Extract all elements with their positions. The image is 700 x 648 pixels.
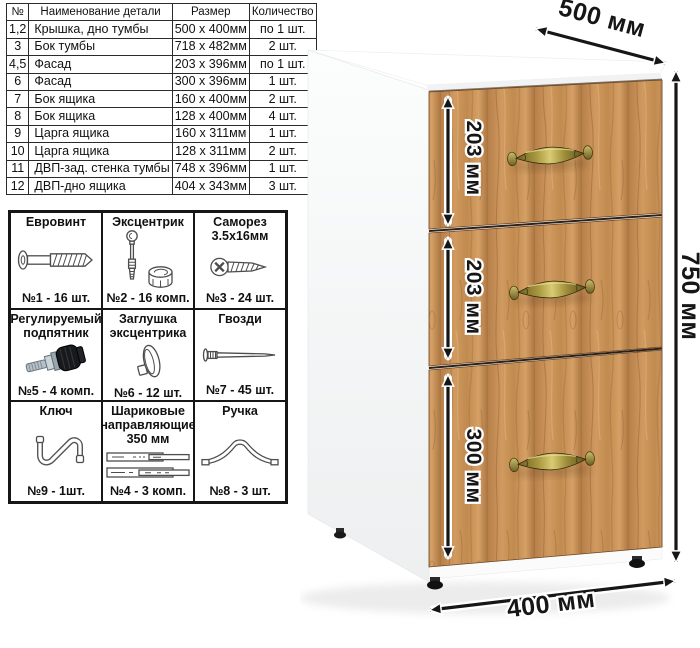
cell-name: Фасад (29, 56, 172, 73)
table-row: 3Бок тумбы718 x 482мм2 шт. (7, 38, 317, 55)
hardware-item-eurovint: Евровинт №1 - 16 шт. (10, 212, 102, 309)
hardware-item-count: №6 - 12 шт. (114, 386, 182, 400)
hardware-item-samorez: Саморез 3.5х16мм №3 - 24 шт. (194, 212, 286, 309)
cell-num: 3 (7, 38, 29, 55)
euro-screw-icon (16, 229, 96, 291)
cell-name: Бок тумбы (29, 38, 172, 55)
adjustable-foot-icon (23, 340, 89, 384)
hardware-item-title: Ручка (222, 404, 258, 418)
bow-handle-icon (201, 418, 279, 484)
cell-num: 8 (7, 108, 29, 125)
table-row: 10Царга ящика128 x 311мм2 шт. (7, 143, 317, 160)
cell-num: 9 (7, 125, 29, 142)
cabinet-illustration: 203 мм 203 мм 300 мм 750 мм 500 мм 400 м… (300, 0, 700, 648)
cell-size: 718 x 482мм (172, 38, 249, 55)
ball-bearing-slides-icon (105, 446, 191, 484)
cam-lock-icon (119, 229, 177, 291)
hardware-grid: Евровинт №1 - 16 шт. Эксцентрик (8, 210, 288, 504)
hardware-item-excentric: Эксцентрик №2 - 16 комп. (102, 212, 194, 309)
cell-num: 7 (7, 90, 29, 107)
cell-num: 1,2 (7, 21, 29, 38)
dimension-label-drawer1: 203 мм (462, 121, 485, 196)
hardware-item-title: Гвозди (218, 312, 262, 326)
hardware-item-title: Эксцентрик (112, 215, 184, 229)
hardware-item-key: Ключ №9 - 1шт. (10, 401, 102, 502)
cell-name: Царга ящика (29, 143, 172, 160)
side-panel (308, 50, 429, 582)
hardware-item-title: Шариковые направляющие 350 мм (100, 404, 195, 446)
cell-num: 10 (7, 143, 29, 160)
hardware-item-cam-cover: Заглушка эксцентрика №6 - 12 шт. (102, 309, 194, 401)
cell-name: Фасад (29, 73, 172, 90)
cell-size: 748 x 396мм (172, 160, 249, 177)
hardware-item-handle: Ручка №8 - 3 шт. (194, 401, 286, 502)
hardware-item-count: №7 - 45 шт. (206, 383, 274, 397)
parts-table-header-row: № Наименование детали Размер Количество (7, 4, 317, 21)
hardware-item-foot: Регулируемый подпятник №5 - 4 комп. (10, 309, 102, 401)
self-tapping-screw-icon (209, 243, 271, 291)
cell-num: 6 (7, 73, 29, 90)
assembly-instruction-sheet: № Наименование детали Размер Количество … (0, 0, 700, 648)
hardware-item-title: Евровинт (26, 215, 86, 229)
hardware-item-nails: Гвозди №7 - 45 шт. (194, 309, 286, 401)
hardware-item-slides: Шариковые направляющие 350 мм №4 - 3 ком… (102, 401, 194, 502)
cell-size: 160 x 400мм (172, 90, 249, 107)
table-row: 8Бок ящика128 x 400мм4 шт. (7, 108, 317, 125)
parts-table: № Наименование детали Размер Количество … (6, 3, 317, 195)
cell-num: 12 (7, 177, 29, 194)
cell-name: Бок ящика (29, 108, 172, 125)
table-row: 4,5Фасад203 x 396ммпо 1 шт. (7, 56, 317, 73)
cell-size: 128 x 400мм (172, 108, 249, 125)
hardware-item-count: №9 - 1шт. (27, 484, 85, 498)
hardware-item-title: Регулируемый подпятник (10, 312, 101, 340)
hardware-item-title: Заглушка эксцентрика (110, 312, 187, 340)
table-row: 1,2Крышка, дно тумбы500 x 400ммпо 1 шт. (7, 21, 317, 38)
cell-name: Царга ящика (29, 125, 172, 142)
cell-size: 404 x 343мм (172, 177, 249, 194)
hardware-item-count: №3 - 24 шт. (206, 291, 274, 305)
cell-name: ДВП-дно ящика (29, 177, 172, 194)
cell-name: ДВП-зад. стенка тумбы (29, 160, 172, 177)
hardware-item-count: №1 - 16 шт. (22, 291, 90, 305)
hardware-item-title: Саморез 3.5х16мм (212, 215, 269, 243)
hardware-item-title: Ключ (39, 404, 72, 418)
nail-icon (201, 326, 279, 383)
cell-name: Крышка, дно тумбы (29, 21, 172, 38)
cell-size: 500 x 400мм (172, 21, 249, 38)
hardware-item-count: №4 - 3 комп. (110, 484, 186, 498)
cell-size: 160 x 311мм (172, 125, 249, 142)
cell-size: 128 x 311мм (172, 143, 249, 160)
hardware-item-count: №8 - 3 шт. (209, 484, 270, 498)
dimension-label-drawer2: 203 мм (462, 260, 485, 335)
cam-cover-icon (128, 340, 168, 386)
dimension-arrow-depth (536, 29, 665, 63)
col-header-num: № (7, 4, 29, 21)
table-row: 12ДВП-дно ящика404 x 343мм3 шт. (7, 177, 317, 194)
hardware-item-count: №2 - 16 комп. (106, 291, 189, 305)
cell-name: Бок ящика (29, 90, 172, 107)
cell-num: 11 (7, 160, 29, 177)
dimension-label-height: 750 мм (676, 252, 700, 341)
cell-num: 4,5 (7, 56, 29, 73)
table-row: 6Фасад300 x 396мм1 шт. (7, 73, 317, 90)
col-header-name: Наименование детали (29, 4, 172, 21)
cell-size: 300 x 396мм (172, 73, 249, 90)
key-icon (27, 418, 85, 484)
table-row: 9Царга ящика160 x 311мм1 шт. (7, 125, 317, 142)
table-row: 7Бок ящика160 x 400мм2 шт. (7, 90, 317, 107)
table-row: 11ДВП-зад. стенка тумбы748 x 396мм1 шт. (7, 160, 317, 177)
col-header-size: Размер (172, 4, 249, 21)
cell-size: 203 x 396мм (172, 56, 249, 73)
dimension-label-drawer3: 300 мм (462, 429, 485, 504)
hardware-item-count: №5 - 4 комп. (18, 384, 94, 398)
